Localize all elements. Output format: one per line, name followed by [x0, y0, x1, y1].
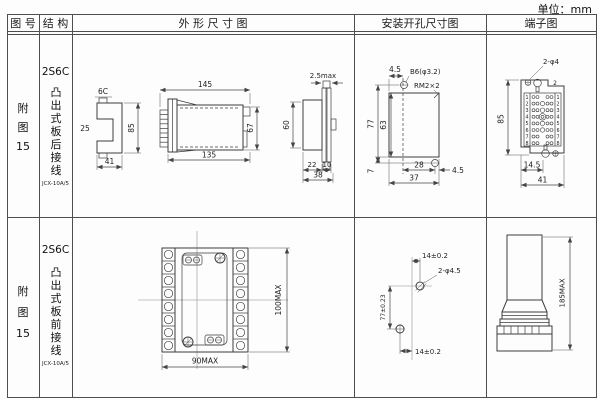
svg-text:2: 2 — [525, 101, 528, 107]
svg-text:6: 6 — [556, 128, 559, 134]
svg-text:8: 8 — [525, 141, 528, 147]
hole-callout: 2-φ4 — [543, 58, 560, 66]
mount-hole-view-front: 14±0.2 2-φ4.5 77±0.23 14±0.2 — [380, 252, 461, 360]
fig-char: 图 — [7, 118, 39, 137]
dim-4-5-top: 4.5 — [389, 65, 401, 74]
r1-mount-drawing: 4.5 B6(φ3.2) RM2×2 77 63 7 28 37 4.5 — [354, 33, 486, 217]
header-outline: 外 形 尺 寸 图 — [72, 16, 354, 32]
header-mount: 安装开孔尺寸图 — [354, 16, 486, 32]
svg-text:3: 3 — [525, 108, 528, 114]
type-code-row1: JCX-10A/5 — [39, 181, 72, 187]
dim-41: 41 — [538, 176, 548, 185]
terminal-side-view: 185MAX — [497, 235, 573, 351]
fig-number: 15 — [7, 323, 39, 344]
dim-2-5max: 2.5max — [310, 72, 336, 80]
side-view: 145 135 67 — [160, 80, 260, 163]
dim-77: 77 — [367, 119, 376, 129]
hole-callout: B6(φ3.2) — [410, 68, 441, 76]
dim-135: 135 — [202, 151, 217, 160]
table-border-top — [7, 14, 597, 15]
dim-25: 25 — [80, 124, 90, 133]
svg-text:3: 3 — [556, 108, 559, 114]
thread-callout: RM2×2 — [414, 82, 440, 90]
mount-hole-view-rear: 4.5 B6(φ3.2) RM2×2 77 63 7 28 37 4.5 — [367, 65, 465, 186]
type-code-row2: JCX-10A/5 — [39, 361, 72, 367]
svg-text:1: 1 — [556, 95, 559, 101]
svg-text:2: 2 — [556, 101, 559, 107]
svg-text:7: 7 — [556, 134, 559, 140]
dim-14-bottom: 14±0.2 — [415, 348, 441, 356]
table-border-bottom — [7, 397, 597, 398]
svg-text:8: 8 — [556, 141, 559, 147]
r2-outline-drawing: 100MAX 90MAX — [72, 217, 354, 397]
fig-number-row1: 附 图 15 — [7, 99, 39, 156]
dim-6c: 6C — [98, 87, 108, 96]
svg-text:6: 6 — [525, 128, 528, 134]
svg-text:5: 5 — [525, 121, 528, 127]
dim-100max: 100MAX — [274, 284, 283, 315]
dim-14-5: 14.5 — [524, 161, 541, 170]
header-fig: 图 号 — [7, 16, 39, 32]
svg-text:7: 7 — [525, 134, 528, 140]
dim-10: 10 — [323, 161, 332, 169]
header-terminal: 端子图 — [486, 16, 596, 32]
dim-38: 38 — [313, 171, 323, 180]
dim-41: 41 — [105, 157, 115, 166]
screw-2-label: 2 — [553, 80, 557, 87]
panel-profile-view: 2.5max 60 22 10 38 — [282, 72, 343, 183]
r1-terminal-drawing: 85 2-φ4 2 — [486, 33, 596, 217]
structure-desc-row2: 凸出式板前接线 — [48, 266, 64, 357]
dim-22: 22 — [308, 161, 317, 169]
svg-text:5: 5 — [556, 121, 559, 127]
terminal-view-rear: 85 2-φ4 2 — [497, 58, 565, 188]
r1-outline-drawing: 6C 25 85 41 — [72, 33, 354, 217]
dim-4-5-right: 4.5 — [452, 166, 464, 175]
dim-60: 60 — [282, 120, 291, 130]
dim-90max: 90MAX — [192, 357, 218, 366]
fig-number-row2: 附 图 15 — [7, 281, 39, 344]
header-struct: 结 构 — [39, 16, 72, 32]
dim-7: 7 — [367, 168, 376, 173]
dim-185max: 185MAX — [559, 278, 567, 307]
dim-37: 37 — [409, 174, 419, 183]
r2-terminal-drawing: 185MAX — [486, 217, 596, 397]
model-row2: 2S6C — [39, 244, 72, 256]
r2-mount-drawing: 14±0.2 2-φ4.5 77±0.23 14±0.2 — [354, 217, 486, 397]
c-profile-view: 6C 25 85 41 — [80, 87, 141, 170]
terminal-grid — [532, 96, 553, 145]
svg-text:4: 4 — [556, 115, 559, 121]
dim-85: 85 — [497, 114, 506, 124]
model-row1: 2S6C — [39, 66, 72, 78]
fig-number: 15 — [7, 137, 39, 156]
fig-char: 图 — [7, 302, 39, 323]
hole-callout: 2-φ4.5 — [438, 267, 461, 275]
structure-desc-row1: 凸出式板后接线 — [48, 86, 64, 177]
dim-85: 85 — [127, 123, 136, 133]
fig-char: 附 — [7, 281, 39, 302]
dim-28: 28 — [414, 161, 424, 170]
svg-text:4: 4 — [525, 115, 528, 121]
dim-14-top: 14±0.2 — [422, 252, 448, 260]
dim-63: 63 — [379, 120, 388, 130]
dim-77: 77±0.23 — [380, 294, 387, 320]
dim-145: 145 — [198, 80, 213, 89]
front-view: 100MAX 90MAX — [138, 231, 290, 370]
dim-67: 67 — [246, 123, 255, 133]
svg-text:1: 1 — [525, 95, 528, 101]
fig-char: 附 — [7, 99, 39, 118]
relay-spec-sheet: 单位：mm 图 号 结 构 外 形 尺 寸 图 安装开孔尺寸图 端子图 附 图 … — [0, 0, 600, 400]
table-border-right — [596, 14, 597, 397]
